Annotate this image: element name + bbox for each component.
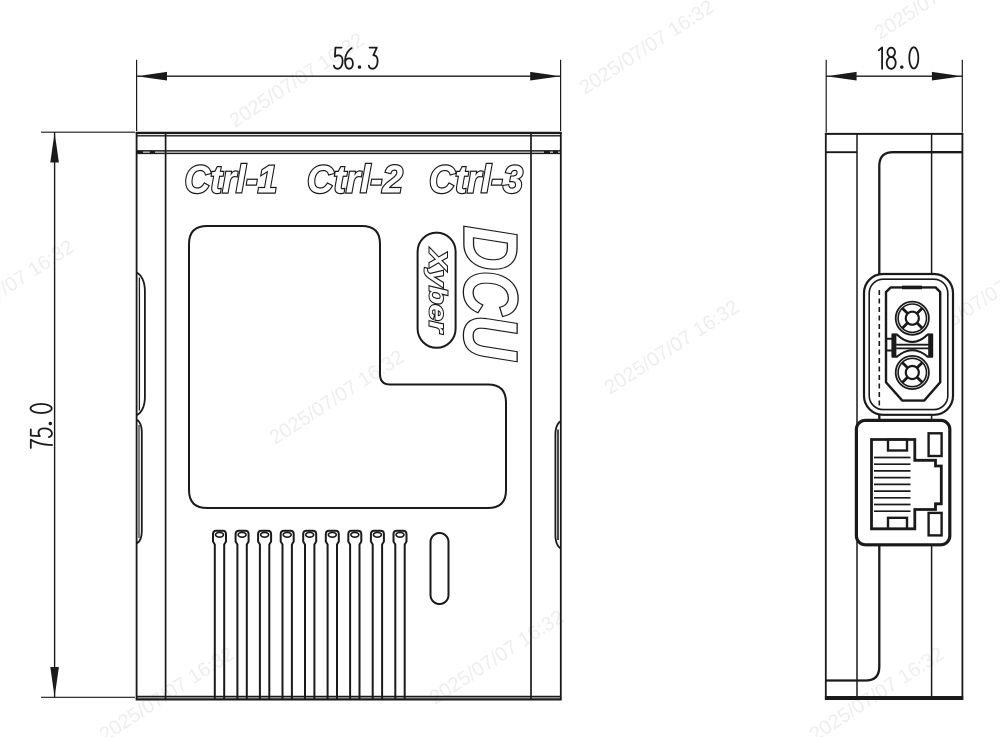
svg-text:Ctrl-3: Ctrl-3 xyxy=(429,159,523,202)
svg-text:Ctrl-1: Ctrl-1 xyxy=(185,159,278,202)
svg-text:Xyber: Xyber xyxy=(424,247,452,334)
svg-text:DCU: DCU xyxy=(449,226,533,362)
svg-text:Ctrl-2: Ctrl-2 xyxy=(307,159,404,202)
